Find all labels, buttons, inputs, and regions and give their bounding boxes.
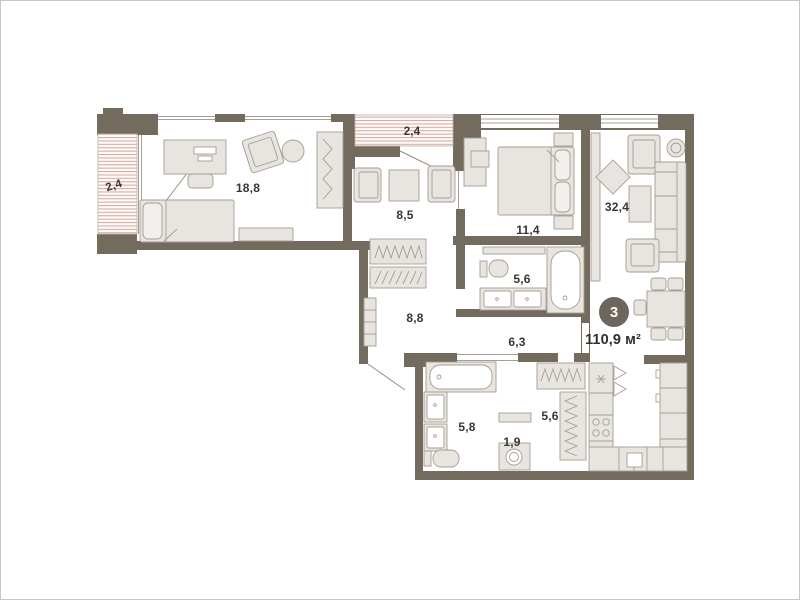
desk-chair [188,174,213,188]
table [389,170,419,201]
room-label-laundry: 1,9 [503,435,520,449]
bedroom-second-furniture [464,133,574,229]
room-label-closet: 5,6 [541,409,558,423]
room-label-balcony-top: 2,4 [404,126,421,138]
chair [668,328,683,340]
shelf [483,247,545,254]
pillow [555,150,570,180]
cabinet-handle [656,394,660,402]
room-label-hallway: 6,3 [508,335,525,349]
room-label-bedroom-second: 11,4 [516,223,540,237]
kitchen-counter [589,363,613,447]
clothes-rack [560,392,586,460]
coffee-table [629,186,651,222]
bathroom-main-fixtures [480,247,584,313]
nightstand [554,216,573,229]
ottoman [596,160,630,194]
clothes-rack [537,363,585,389]
room-label-corridor: 8,8 [406,311,423,325]
chair [651,328,666,340]
pillow [555,182,570,212]
armchair [242,131,285,174]
fridge-icon [614,366,626,396]
room-label-living-room: 32,4 [605,200,629,214]
tv-stand [239,228,293,241]
dining-table [647,291,685,327]
plant-icon [667,139,685,157]
wardrobe [317,132,343,208]
armchair [354,168,381,202]
floor-plan: 2,4 18,8 2,4 8,5 11,4 32,4 5,6 8,8 6,3 5… [0,0,800,600]
corridor-storage [364,239,426,346]
room-label-bathroom-main: 5,6 [513,272,530,286]
lounge-furniture [354,166,455,202]
room-label-lounge: 8,5 [396,208,413,222]
kitchen-counter [660,363,687,447]
shelf [499,413,531,422]
toilet [424,451,431,466]
side-table [282,140,304,162]
chair [668,278,683,290]
nightstand [554,133,573,146]
floor-plan-drawing [1,1,800,600]
room-label-bathroom-second: 5,8 [458,420,475,434]
total-area-label: 110,9 м² [585,332,641,348]
room-label-bedroom-large: 18,8 [236,181,260,195]
cabinet-handle [656,370,660,378]
toilet [480,261,487,277]
bathroom-second-fixtures [424,362,496,467]
chair [651,278,666,290]
kitchen-units [589,363,687,471]
kitchen-sink [627,453,642,467]
chair [634,300,646,315]
desk [164,140,226,174]
monitor-icon [194,147,216,154]
sofa [655,162,686,262]
room-count-badge: 3 [599,297,629,327]
sideboard [591,133,600,281]
pillow [143,203,162,239]
